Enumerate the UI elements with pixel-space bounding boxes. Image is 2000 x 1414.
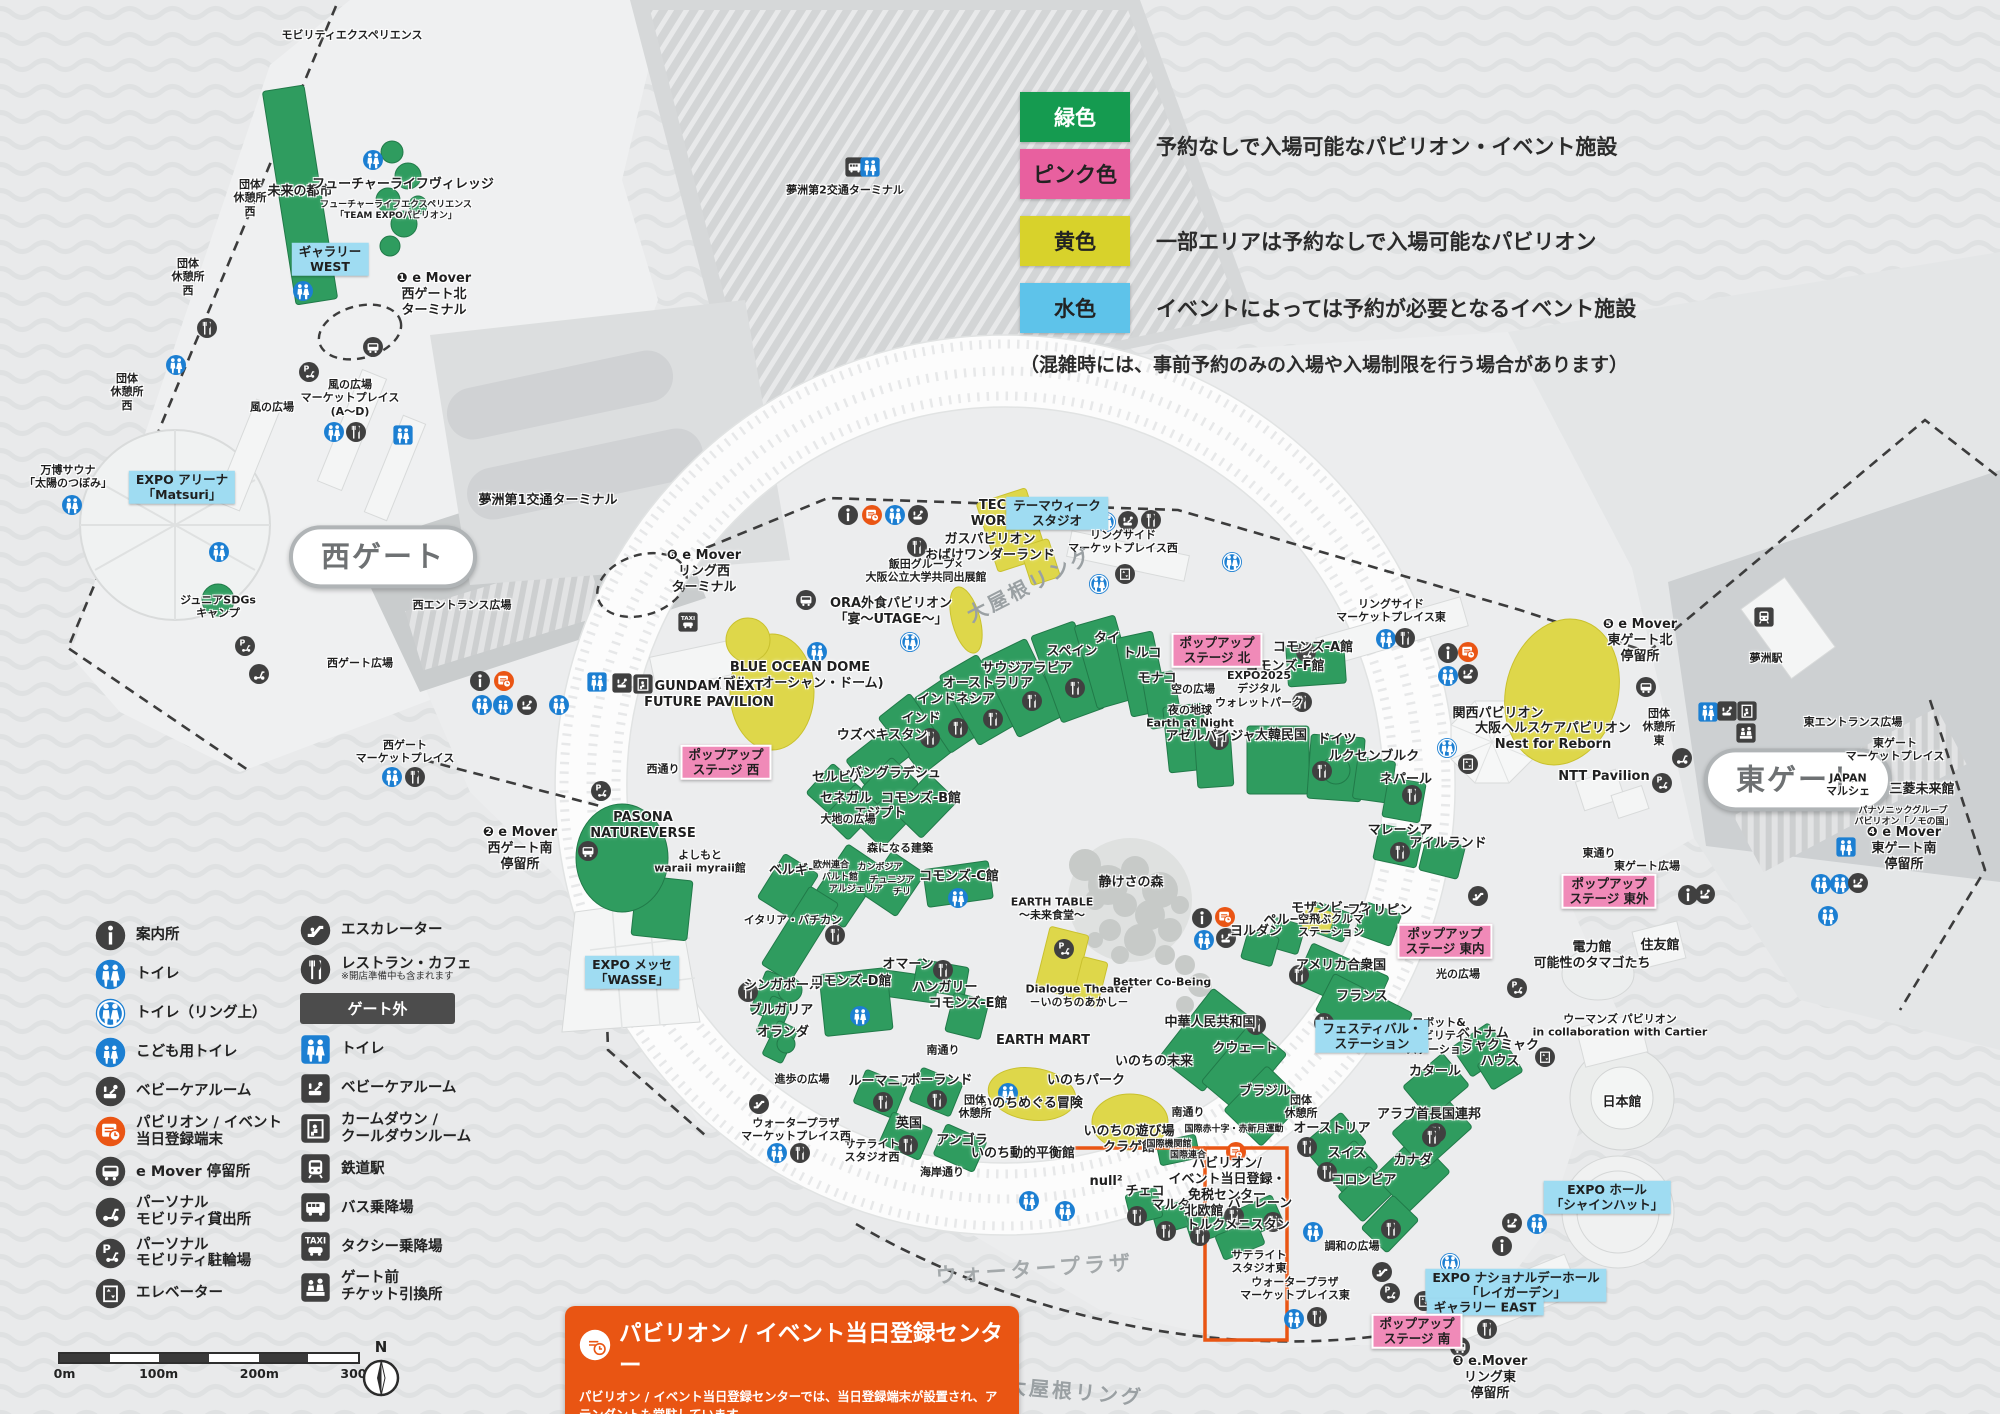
legend-item-label: エスカレーター [341,922,443,939]
color-legend-row: 黄色一部エリアは予約なしで入場可能なパビリオン [1020,216,1940,266]
trainSq-icon [300,1153,331,1184]
color-legend-description: 予約なしで入場可能なパビリオン・イベント施設 [1156,131,1617,161]
legend-item-trainSq: 鉄道駅 [300,1153,500,1184]
legend-item-toiletRing: トイレ（リング上） [95,998,295,1029]
scale-tick-label: 0m [54,1366,76,1381]
legend-item-taxiSq: TAXIタクシー乗降場 [300,1231,500,1262]
compass-needle [359,1356,403,1400]
legend-item-label: カームダウン / クールダウンルーム [341,1112,471,1145]
scale-bar: 0m100m200m300m [58,1352,360,1380]
legend-item-babySq: ベビーケアルーム [300,1073,500,1104]
legend-item-label: トイレ [341,1041,385,1058]
gateSq-icon [300,1272,331,1303]
legend-item-esc: エスカレーター [300,915,500,946]
legend-item-label: e Mover 停留所 [136,1164,250,1181]
scale-tick-label: 100m [139,1366,178,1381]
legend-item-gateSq: ゲート前 チケット引換所 [300,1270,500,1303]
day-registration-banner: パビリオン / イベント当日登録センター パビリオン / イベント当日登録センタ… [565,1306,1019,1414]
compass-north-label: N [358,1338,404,1356]
info-icon [95,920,126,951]
icon-legend-column-2: エスカレーターレストラン・カフェ※開店準備中も含まれますゲート外トイレベビーケア… [300,915,500,1312]
legend-item-label: パビリオン / イベント 当日登録端末 [136,1115,282,1148]
pscooter-icon: P [95,1238,126,1269]
legend-item-label: バス乗降場 [341,1200,414,1217]
toiletRing-icon [95,998,126,1029]
banner-subtitle: パビリオン / イベント当日登録センターでは、当日登録端末が設置され、アテンダン… [579,1387,1005,1414]
legend-item-label: パーソナル モビリティ駐輪場 [136,1237,251,1270]
legend-item-scooter: パーソナル モビリティ貸出所 [95,1195,295,1228]
svg-text:P: P [102,1242,111,1256]
elev-icon [95,1278,126,1309]
scale-segment [209,1354,259,1362]
color-swatch-stack: 緑色ピンク色 [1020,92,1130,199]
scale-bar-ticks: 0m100m200m300m [58,1364,360,1380]
legend-item-calmSq: カームダウン / クールダウンルーム [300,1112,500,1145]
color-legend: 緑色ピンク色予約なしで入場可能なパビリオン・イベント施設黄色一部エリアは予約なし… [1020,92,1940,377]
busSq-icon [300,1192,331,1223]
taxiSq-icon: TAXI [300,1231,331,1262]
kids-icon [95,1037,126,1068]
legend-item-rest: レストラン・カフェ※開店準備中も含まれます [300,954,500,985]
legend-item-busSq: バス乗降場 [300,1192,500,1223]
color-swatch: 緑色 [1020,92,1130,142]
legend-item-label: レストラン・カフェ※開店準備中も含まれます [341,956,472,984]
scale-segment [60,1354,110,1362]
scale-segment [159,1354,209,1362]
color-legend-description: 一部エリアは予約なしで入場可能なパビリオン [1156,226,1596,256]
color-swatch: ピンク色 [1020,149,1130,199]
banner-title-text: パビリオン / イベント当日登録センター [619,1316,1005,1380]
color-swatch: 水色 [1020,283,1130,333]
scale-bar-segments [58,1352,360,1364]
expo-2025-venue-map: PPPTAXIPPPPP モビリティエクスペリエンス団体 休憩所 西団体 休憩所… [0,0,2000,1414]
color-swatch-stack: 水色 [1020,283,1130,333]
color-swatch: 黄色 [1020,216,1130,266]
babySq-icon [300,1073,331,1104]
legend-item-label: ベビーケアルーム [341,1080,456,1097]
color-swatch-stack: 黄色 [1020,216,1130,266]
color-legend-row: 緑色ピンク色予約なしで入場可能なパビリオン・イベント施設 [1020,92,1940,199]
esc-icon [300,915,331,946]
compass: N [358,1338,404,1404]
legend-item-label: ベビーケアルーム [136,1083,251,1100]
baby-icon [95,1076,126,1107]
scale-segment [308,1354,358,1362]
legend-item-pscooter: Pパーソナル モビリティ駐輪場 [95,1237,295,1270]
legend-item-reg: パビリオン / イベント 当日登録端末 [95,1115,295,1148]
legend-item-label: ゲート前 チケット引換所 [341,1270,443,1303]
legend-item-label: トイレ [136,966,180,983]
legend-item-baby: ベビーケアルーム [95,1076,295,1107]
emover-icon [95,1156,126,1187]
outside-gate-banner: ゲート外 [300,993,455,1024]
legend-item-label: パーソナル モビリティ貸出所 [136,1195,251,1228]
legend-item-emover: e Mover 停留所 [95,1156,295,1187]
reg-icon [95,1116,126,1147]
legend-item-label: エレベーター [136,1285,223,1302]
color-legend-description: イベントによっては予約が必要となるイベント施設 [1156,293,1636,323]
icon-legend-column-1: 案内所トイレトイレ（リング上）こども用トイレベビーケアルームパビリオン / イベ… [95,920,295,1317]
legend-item-elev: エレベーター [95,1278,295,1309]
scale-tick-label: 200m [240,1366,279,1381]
legend-item-label: 鉄道駅 [341,1161,385,1178]
legend-item-label: トイレ（リング上） [136,1005,267,1022]
legend-item-toilet: トイレ [95,959,295,990]
legend-item-label: こども用トイレ [136,1044,238,1061]
toilet-icon [95,959,126,990]
rest-icon [300,954,331,985]
legend-item-sublabel: ※開店準備中も含まれます [341,972,472,983]
banner-title: パビリオン / イベント当日登録センター [579,1316,1005,1380]
legend-item-info: 案内所 [95,920,295,951]
toiletSq-icon [300,1034,331,1065]
scale-segment [259,1354,309,1362]
legend-note: （混雑時には、事前予約のみの入場や入場制限を行う場合があります） [1020,350,1940,377]
registration-icon [579,1329,611,1367]
calmSq-icon [300,1113,331,1144]
color-legend-row: 水色イベントによっては予約が必要となるイベント施設 [1020,283,1940,333]
legend-item-label: タクシー乗降場 [341,1239,443,1256]
scale-segment [110,1354,160,1362]
scooter-icon [95,1197,126,1228]
legend-item-label: 案内所 [136,927,180,944]
legend-item-kids: こども用トイレ [95,1037,295,1068]
legend-item-toiletSq: トイレ [300,1034,500,1065]
svg-text:TAXI: TAXI [305,1236,326,1246]
